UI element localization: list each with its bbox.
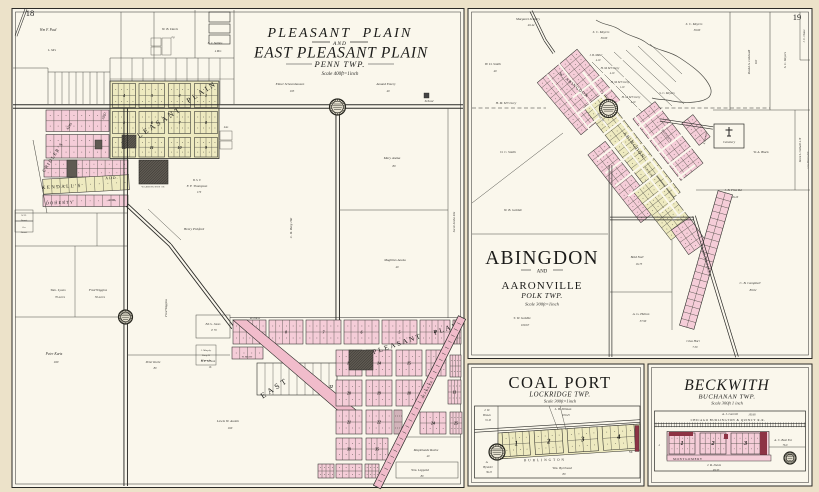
svg-text:Tom. Lyons: Tom. Lyons bbox=[50, 288, 66, 292]
svg-text:Chas Meyers 20.6: Chas Meyers 20.6 bbox=[808, 151, 810, 169]
svg-text:76.0: 76.0 bbox=[783, 444, 788, 447]
svg-text:18: 18 bbox=[407, 391, 411, 396]
svg-text:Fred Wiggins: Fred Wiggins bbox=[164, 298, 168, 317]
svg-text:72.10: 72.10 bbox=[485, 419, 492, 422]
svg-text:105: 105 bbox=[290, 89, 295, 93]
svg-text:Henry Pickford: Henry Pickford bbox=[183, 227, 205, 231]
svg-text:11: 11 bbox=[150, 145, 154, 150]
svg-text:J. Murphy: J. Murphy bbox=[201, 349, 212, 352]
svg-text:A. J. Carroll: A. J. Carroll bbox=[721, 412, 738, 416]
svg-text:1: 1 bbox=[514, 439, 518, 447]
svg-text:2: 2 bbox=[177, 93, 180, 98]
svg-text:BURLINGTON: BURLINGTON bbox=[524, 458, 566, 463]
svg-text:Fred Wiggins: Fred Wiggins bbox=[88, 288, 108, 292]
svg-text:School: School bbox=[425, 99, 434, 103]
svg-text:S. C. Meyers: S. C. Meyers bbox=[783, 51, 787, 68]
svg-text:J. R. Davis: J. R. Davis bbox=[707, 463, 722, 467]
svg-text:4.10: 4.10 bbox=[631, 101, 636, 104]
svg-text:40: 40 bbox=[387, 89, 391, 93]
svg-text:Wm F. Paul: Wm F. Paul bbox=[40, 28, 57, 32]
svg-text:Peter Kurtz: Peter Kurtz bbox=[145, 360, 162, 364]
svg-text:W. B. Gobble: W. B. Gobble bbox=[504, 208, 522, 212]
svg-text:PENN TWP.: PENN TWP. bbox=[314, 59, 366, 69]
svg-text:4 Mrs: 4 Mrs bbox=[215, 50, 222, 53]
svg-text:W. H.: W. H. bbox=[21, 214, 27, 217]
svg-text:Ed G. Jones: Ed G. Jones bbox=[204, 322, 221, 326]
svg-text:W. A. Black: W. A. Black bbox=[753, 150, 769, 154]
svg-text:3: 3 bbox=[150, 93, 153, 98]
svg-text:MONTGOMERY: MONTGOMERY bbox=[673, 457, 703, 461]
svg-text:4.10: 4.10 bbox=[610, 72, 615, 75]
svg-text:Jacob Aneka 40a: Jacob Aneka 40a bbox=[452, 211, 456, 232]
svg-text:ADD.: ADD. bbox=[108, 198, 116, 202]
svg-text:11: 11 bbox=[453, 390, 457, 395]
svg-text:Mary Aneka: Mary Aneka bbox=[383, 156, 401, 160]
svg-text:ABINGDON: ABINGDON bbox=[485, 248, 599, 269]
svg-text:Camp R.: Camp R. bbox=[202, 354, 211, 357]
svg-text:C. H. Berg 160: C. H. Berg 160 bbox=[289, 217, 293, 238]
svg-text:70 acres: 70 acres bbox=[55, 295, 66, 299]
svg-text:W. RIGHT: W. RIGHT bbox=[242, 356, 253, 359]
svg-text:H. M. M’Creery: H. M. M’Creery bbox=[495, 101, 517, 105]
svg-text:100.25: 100.25 bbox=[562, 414, 570, 417]
svg-text:Stamis: Stamis bbox=[21, 231, 27, 234]
svg-text:Maplelands Roehe: Maplelands Roehe bbox=[413, 448, 439, 452]
svg-text:Kilgore 5a: Kilgore 5a bbox=[200, 359, 212, 362]
svg-text:30.60: 30.60 bbox=[694, 28, 701, 32]
svg-text:26.20: 26.20 bbox=[732, 196, 739, 199]
svg-text:Brown: Brown bbox=[483, 413, 491, 417]
svg-text:W. B. Davis: W. B. Davis bbox=[162, 27, 179, 31]
svg-text:BECKWITH: BECKWITH bbox=[684, 377, 770, 394]
svg-text:L. B. Zillman: L. B. Zillman bbox=[554, 407, 572, 411]
svg-text:S. C. Meyers: S. C. Meyers bbox=[686, 22, 704, 26]
svg-text:100.60: 100.60 bbox=[748, 414, 756, 417]
svg-text:J. C. Chase: J. C. Chase bbox=[803, 29, 806, 43]
svg-text:POLK TWP.: POLK TWP. bbox=[520, 291, 562, 300]
svg-text:WASHINGTON ST.: WASHINGTON ST. bbox=[142, 186, 166, 189]
svg-text:24: 24 bbox=[430, 421, 435, 426]
svg-text:30.00: 30.00 bbox=[601, 36, 608, 40]
svg-text:J. W.: J. W. bbox=[484, 408, 490, 412]
svg-text:COAL PORT: COAL PORT bbox=[508, 373, 611, 392]
svg-text:H. M. M’Creery: H. M. M’Creery bbox=[610, 80, 630, 84]
svg-text:7.50: 7.50 bbox=[693, 346, 698, 349]
svg-text:DOHERTY: DOHERTY bbox=[46, 200, 74, 206]
svg-text:Peter Kurtz: Peter Kurtz bbox=[45, 352, 63, 356]
svg-text:93.37: 93.37 bbox=[713, 469, 720, 472]
svg-text:50 acres: 50 acres bbox=[95, 295, 106, 299]
svg-text:6: 6 bbox=[361, 330, 363, 335]
svg-text:Scale 300ft=1inch: Scale 300ft=1inch bbox=[525, 302, 560, 307]
svg-text:160: 160 bbox=[754, 59, 758, 64]
svg-text:39: 39 bbox=[346, 447, 351, 452]
svg-text:Lg: Lg bbox=[171, 36, 176, 39]
svg-text:40: 40 bbox=[494, 69, 498, 73]
svg-text:LOCKRIDGE TWP.: LOCKRIDGE TWP. bbox=[528, 392, 590, 399]
svg-text:80.62: 80.62 bbox=[750, 288, 757, 292]
svg-text:Scale 300ft 1 inch: Scale 300ft 1 inch bbox=[711, 401, 743, 406]
svg-text:Lewis W. Austin: Lewis W. Austin bbox=[216, 419, 240, 423]
svg-text:Hysteler: Hysteler bbox=[482, 465, 494, 469]
svg-text:T. W. Gobble: T. W. Gobble bbox=[513, 316, 531, 320]
svg-text:F. F. Thompson: F. F. Thompson bbox=[186, 184, 208, 188]
svg-text:ADD.: ADD. bbox=[105, 176, 118, 181]
svg-text:BUCHANAN TWP.: BUCHANAN TWP. bbox=[699, 394, 756, 401]
svg-text:170: 170 bbox=[197, 191, 202, 194]
svg-text:H. M. M’Creery: H. M. M’Creery bbox=[621, 95, 641, 99]
svg-text:15: 15 bbox=[407, 361, 411, 366]
svg-text:David A. Caldwell 4.10: David A. Caldwell 4.10 bbox=[799, 137, 802, 163]
svg-text:40.44: 40.44 bbox=[528, 23, 535, 27]
svg-text:4.10: 4.10 bbox=[596, 59, 601, 62]
svg-text:1: 1 bbox=[680, 440, 683, 447]
svg-text:ST.: ST. bbox=[629, 450, 633, 454]
svg-text:J. B. Miller: J. B. Miller bbox=[589, 53, 603, 57]
svg-text:16.75: 16.75 bbox=[636, 262, 643, 266]
svg-text:Bold Noll: Bold Noll bbox=[631, 255, 644, 259]
svg-text:19: 19 bbox=[377, 391, 381, 396]
svg-text:8: 8 bbox=[285, 330, 287, 335]
svg-text:1.10: 1.10 bbox=[620, 86, 625, 89]
svg-text:Wm. Leppold: Wm. Leppold bbox=[411, 468, 429, 472]
svg-text:21: 21 bbox=[346, 420, 351, 425]
svg-text:Scale 400ft=1inch: Scale 400ft=1inch bbox=[322, 72, 359, 77]
svg-text:Wm. Byerhead: Wm. Byerhead bbox=[552, 466, 572, 470]
svg-text:Cemetery: Cemetery bbox=[723, 140, 736, 144]
svg-text:C. B. Campbell: C. B. Campbell bbox=[740, 281, 761, 285]
svg-text:35: 35 bbox=[374, 447, 379, 452]
svg-text:L. Mrs: L. Mrs bbox=[47, 48, 57, 52]
svg-text:A. G. Hulton: A. G. Hulton bbox=[632, 312, 650, 316]
svg-text:5: 5 bbox=[399, 330, 401, 335]
svg-text:100.67: 100.67 bbox=[521, 323, 530, 327]
svg-text:Lots: Lots bbox=[223, 126, 228, 129]
svg-text:Scale 300ft=1inch: Scale 300ft=1inch bbox=[544, 399, 577, 404]
svg-text:160: 160 bbox=[228, 426, 233, 430]
svg-text:22: 22 bbox=[376, 420, 381, 425]
svg-text:4: 4 bbox=[122, 93, 125, 98]
svg-text:H. D. Smith: H. D. Smith bbox=[484, 62, 501, 66]
svg-text:H. M. M’Creery: H. M. M’Creery bbox=[600, 66, 620, 70]
svg-text:E 70: E 70 bbox=[210, 329, 217, 332]
svg-text:CHICAGO BURLINGTON & QUINCY R.: CHICAGO BURLINGTON & QUINCY R.R. bbox=[691, 418, 766, 422]
svg-text:Amand Emery: Amand Emery bbox=[375, 82, 396, 86]
svg-text:Margaret Schulry: Margaret Schulry bbox=[515, 17, 540, 21]
svg-text:PLEASANT PLAIN: PLEASANT PLAIN bbox=[266, 26, 412, 41]
svg-text:37.90: 37.90 bbox=[640, 319, 647, 323]
svg-text:Stamis: Stamis bbox=[21, 219, 27, 222]
svg-text:S. J. Sallies: S. J. Sallies bbox=[208, 41, 223, 45]
svg-text:80: 80 bbox=[393, 164, 397, 168]
svg-text:Chas Hurt: Chas Hurt bbox=[686, 339, 699, 343]
svg-text:20: 20 bbox=[346, 391, 351, 396]
svg-text:David A. Caldwell: David A. Caldwell bbox=[747, 50, 751, 75]
svg-text:S. C. Meyers: S. C. Meyers bbox=[593, 30, 611, 34]
svg-text:A. C. Beal Est: A. C. Beal Est bbox=[773, 438, 792, 442]
svg-text:J. B. Flint Rd: J. B. Flint Rd bbox=[724, 188, 741, 192]
svg-text:O. C. Smith: O. C. Smith bbox=[500, 150, 516, 154]
svg-text:160: 160 bbox=[54, 360, 59, 364]
svg-text:A.: A. bbox=[485, 460, 489, 464]
svg-text:S. C. Meyers: S. C. Meyers bbox=[659, 91, 675, 95]
svg-text:Elmer Schoonhausen: Elmer Schoonhausen bbox=[275, 82, 305, 86]
svg-text:B. S. V.: B. S. V. bbox=[193, 179, 201, 182]
svg-text:14: 14 bbox=[377, 361, 381, 366]
svg-text:Magliites Aneka: Magliites Aneka bbox=[383, 258, 406, 262]
svg-text:AND: AND bbox=[537, 270, 548, 275]
svg-text:25: 25 bbox=[453, 421, 458, 426]
svg-text:36.25: 36.25 bbox=[486, 471, 493, 474]
